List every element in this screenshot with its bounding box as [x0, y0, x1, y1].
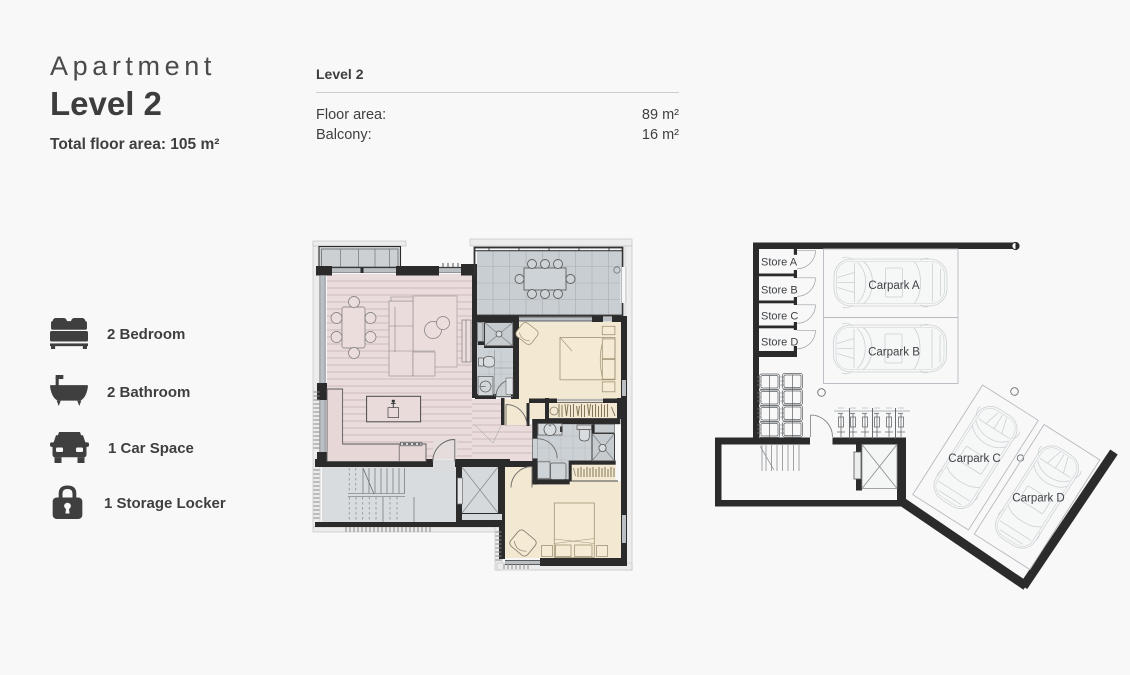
svg-text:Carpark C: Carpark C [948, 453, 1000, 465]
svg-text:Carpark D: Carpark D [1012, 493, 1064, 505]
svg-text:Carpark B: Carpark B [868, 347, 920, 359]
svg-text:Store C: Store C [761, 311, 798, 323]
svg-text:Store A: Store A [761, 257, 798, 269]
svg-text:Store D: Store D [761, 337, 798, 349]
svg-text:Carpark A: Carpark A [868, 280, 919, 292]
svg-text:Store B: Store B [761, 285, 798, 297]
